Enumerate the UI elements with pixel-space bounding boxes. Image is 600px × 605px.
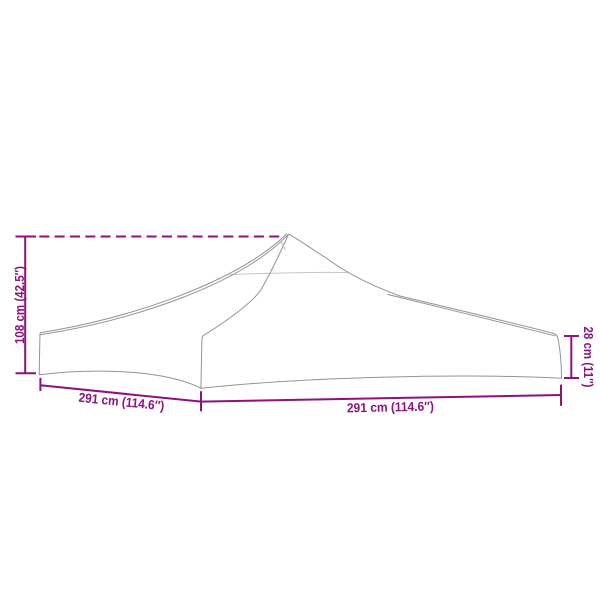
svg-text:291 cm (114.6″): 291 cm (114.6″): [347, 399, 434, 416]
svg-text:108 cm (42.5″): 108 cm (42.5″): [12, 266, 27, 344]
svg-text:28 cm (11″): 28 cm (11″): [581, 327, 596, 388]
